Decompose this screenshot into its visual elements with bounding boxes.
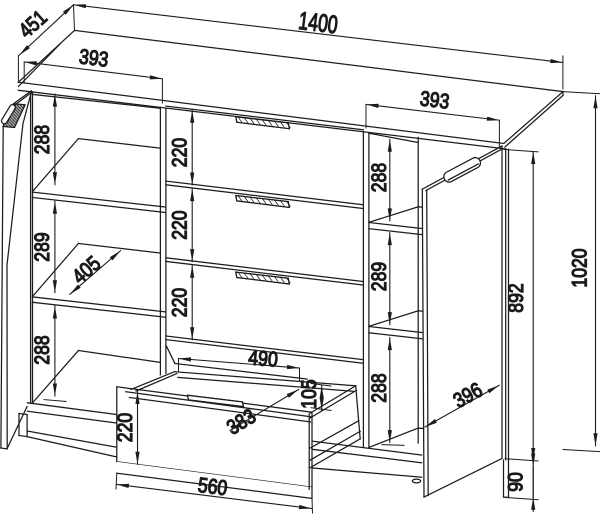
svg-text:396: 396 xyxy=(450,378,487,412)
svg-text:288: 288 xyxy=(368,163,391,192)
svg-text:560: 560 xyxy=(197,474,229,500)
svg-text:1020: 1020 xyxy=(569,248,592,287)
svg-text:220: 220 xyxy=(169,288,192,317)
svg-text:288: 288 xyxy=(31,125,54,154)
svg-text:490: 490 xyxy=(248,346,279,371)
svg-text:892: 892 xyxy=(505,283,528,312)
svg-text:393: 393 xyxy=(78,45,110,71)
svg-text:288: 288 xyxy=(31,335,54,364)
svg-text:220: 220 xyxy=(169,138,192,167)
svg-text:105: 105 xyxy=(298,379,321,408)
svg-text:405: 405 xyxy=(68,252,105,289)
svg-text:1400: 1400 xyxy=(297,7,339,39)
svg-text:393: 393 xyxy=(419,87,451,113)
svg-text:288: 288 xyxy=(368,373,391,402)
svg-text:451: 451 xyxy=(15,6,52,43)
svg-text:90: 90 xyxy=(505,472,528,492)
svg-text:289: 289 xyxy=(368,262,391,291)
svg-text:220: 220 xyxy=(114,413,137,442)
svg-text:220: 220 xyxy=(169,210,192,239)
svg-text:289: 289 xyxy=(31,232,54,261)
